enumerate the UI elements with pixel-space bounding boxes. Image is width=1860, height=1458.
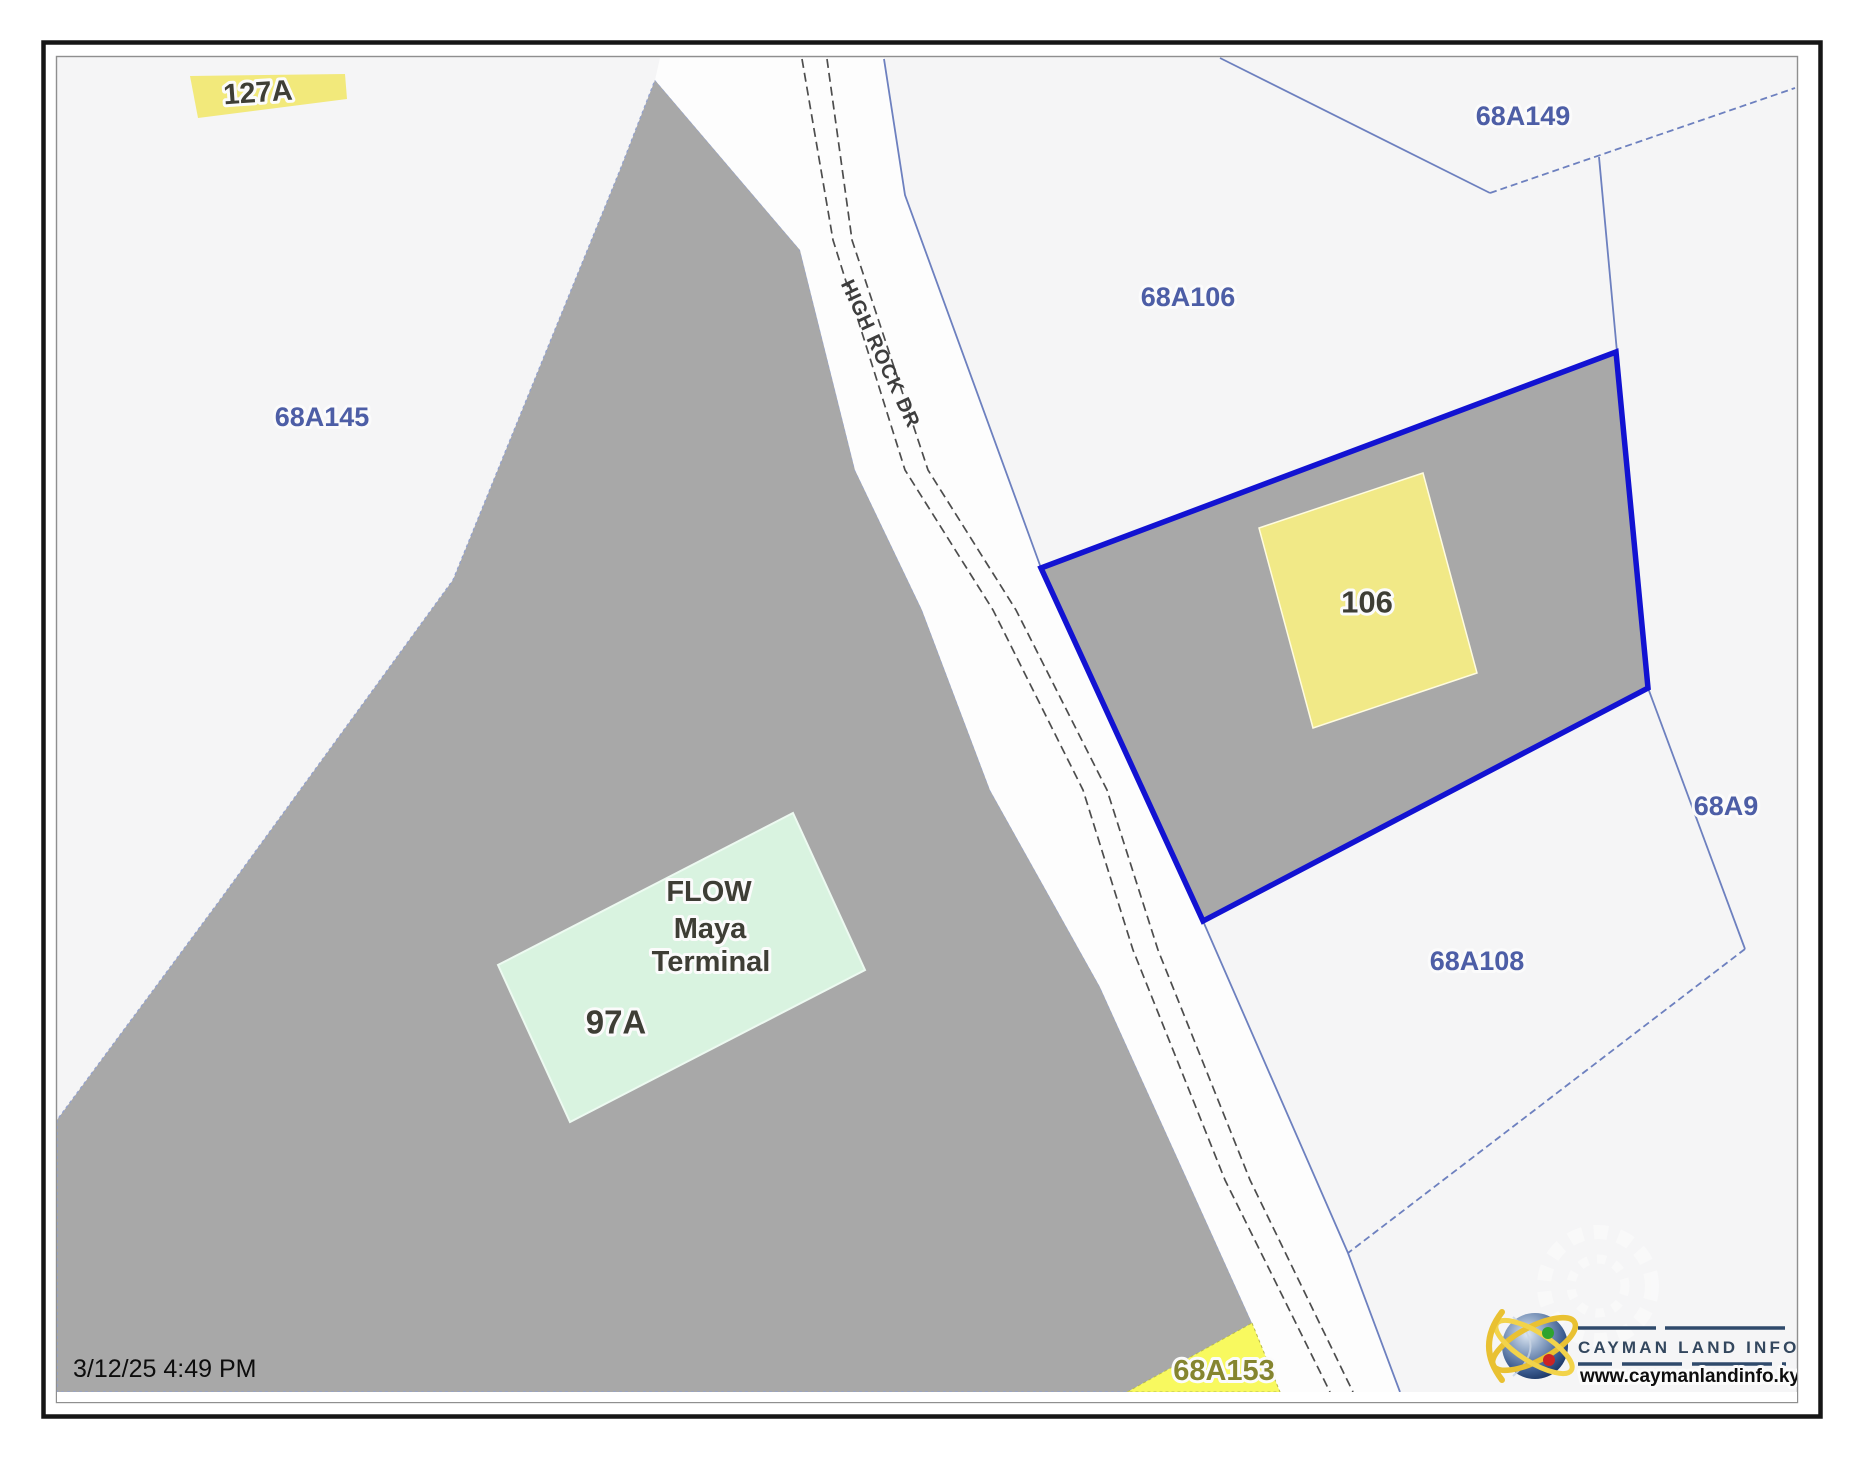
building-106-label: 106 [1341, 585, 1393, 620]
parcel-label-68a153: 68A153 [1173, 1355, 1275, 1387]
cadastral-map: 106 FLOW Maya Terminal 97A 127A HIGH ROC… [0, 0, 1860, 1458]
logo-title: CAYMAN LAND INFO [1578, 1338, 1800, 1357]
map-viewer-page: 106 FLOW Maya Terminal 97A 127A HIGH ROC… [0, 0, 1860, 1458]
logo-url[interactable]: www.caymanlandinfo.ky [1579, 1366, 1800, 1387]
parcel-label-68a9: 68A9 [1694, 791, 1759, 821]
road-127a-label: 127A [222, 75, 293, 112]
flow-label-line2: Maya [674, 913, 747, 945]
map-bottom-margin [57, 1392, 1797, 1403]
flow-label-line1: FLOW [666, 876, 752, 908]
parcel-label-68a149: 68A149 [1476, 101, 1571, 131]
parcel-label-68a145: 68A145 [275, 402, 370, 432]
globe-red-dot-icon [1543, 1354, 1555, 1366]
parcel-label-97a: 97A [586, 1004, 647, 1041]
parcel-label-68a106: 68A106 [1141, 282, 1236, 312]
flow-label-line3: Terminal [652, 946, 771, 978]
timestamp: 3/12/25 4:49 PM [73, 1355, 256, 1383]
globe-green-dot-icon [1542, 1327, 1554, 1339]
parcel-label-68a108: 68A108 [1430, 946, 1525, 976]
